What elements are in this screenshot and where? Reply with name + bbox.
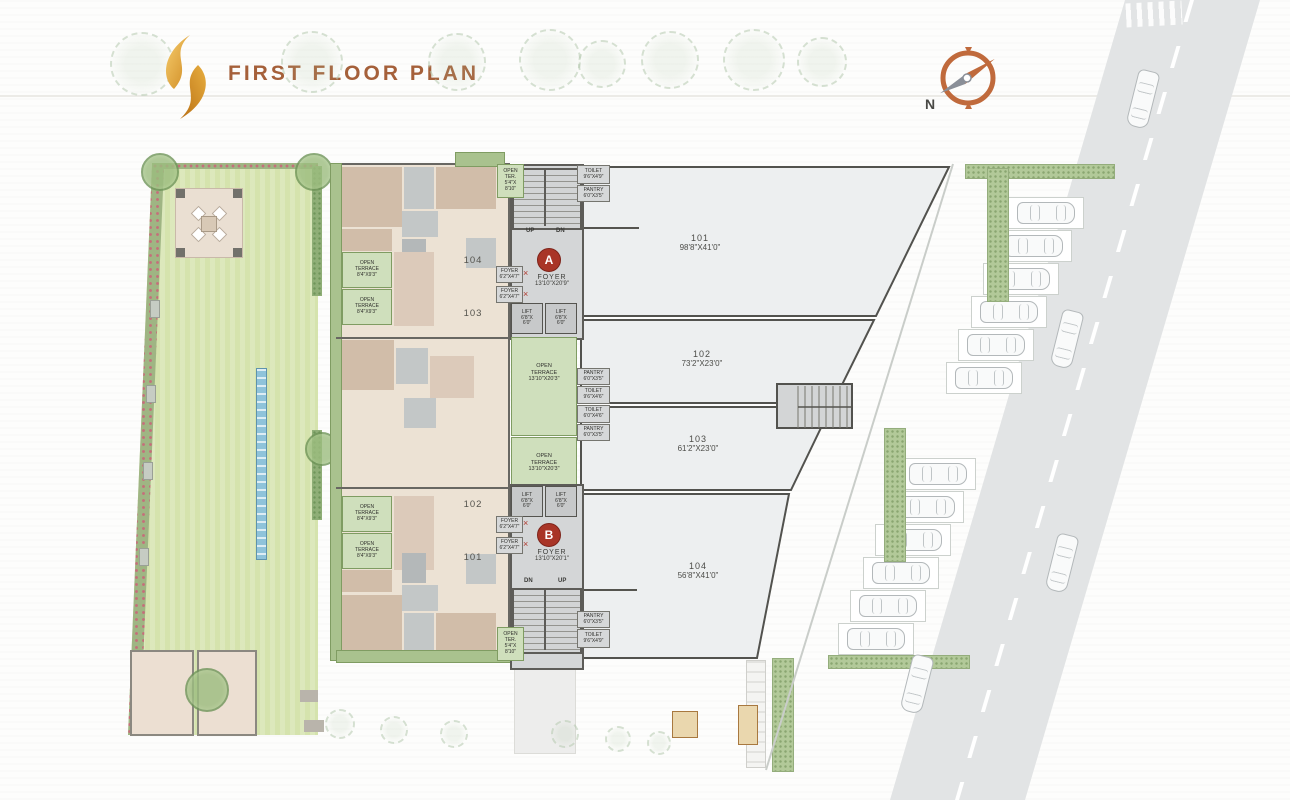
badge-b: B bbox=[537, 523, 561, 547]
toilet-box: TOILET 9'6"X4'9" bbox=[577, 165, 610, 184]
stairs-dn-label: DN bbox=[524, 578, 533, 584]
open-terrace-large-2-label: OPEN TERRACE 13'10"X20'3" bbox=[513, 450, 575, 476]
stair-rail bbox=[544, 168, 546, 226]
gazebo-post bbox=[233, 189, 242, 198]
foyer-small-box: FOYER 6'2"X4'7" bbox=[496, 516, 523, 533]
lift-box: LIFT 6'8"X 6'0" bbox=[511, 303, 543, 334]
room-block bbox=[340, 340, 394, 390]
stairs-up-label: UP bbox=[526, 228, 534, 234]
door-mark: × bbox=[523, 290, 528, 299]
toilet-box: TOILET 6'0"X4'6" bbox=[577, 405, 610, 423]
pantry-box: PANTRY 6'0"X3'5" bbox=[577, 424, 610, 441]
open-terrace-cell: OPEN TERRACE 8'4"X9'3" bbox=[342, 533, 392, 569]
lift-box: LIFT 6'8"X 6'0" bbox=[545, 486, 577, 517]
foyer-b-label: FOYER 13'10"X20'1" bbox=[517, 549, 587, 562]
room-block bbox=[404, 167, 434, 209]
open-ter-corner-b: OPEN TER. 5'4"X 8'10" bbox=[497, 627, 524, 661]
open-ter-corner-a: OPEN TER. 5'4"X 8'10" bbox=[497, 164, 524, 198]
toilet-box: TOILET 9'6"X4'6" bbox=[577, 386, 610, 404]
site-furniture bbox=[738, 705, 758, 745]
terrace-edge-strip bbox=[330, 163, 342, 661]
gazebo-post bbox=[176, 248, 185, 257]
lift-box: LIFT 6'8"X 6'0" bbox=[545, 303, 577, 334]
room-block bbox=[404, 613, 434, 655]
toilet-box: TOILET 9'6"X4'9" bbox=[577, 629, 610, 648]
room-block bbox=[436, 613, 496, 655]
unit-101-label: 101 98'8"X41'0" bbox=[640, 233, 760, 252]
terrace-edge-strip bbox=[336, 650, 512, 663]
room-block bbox=[402, 211, 438, 237]
room-block bbox=[394, 252, 434, 326]
foyer-small-box: FOYER 6'2"X4'7" bbox=[496, 286, 523, 303]
left-room-102: 102 bbox=[455, 499, 491, 510]
room-block bbox=[340, 229, 392, 251]
pantry-box: PANTRY 6'0"X3'5" bbox=[577, 368, 610, 385]
unit-102-label: 102 73'2"X23'0" bbox=[642, 349, 762, 368]
stair-rail bbox=[544, 588, 546, 650]
gazebo-post bbox=[176, 189, 185, 198]
room-block bbox=[340, 595, 402, 655]
room-block bbox=[402, 585, 438, 611]
compass-icon bbox=[932, 42, 1004, 114]
door-mark: × bbox=[523, 269, 528, 278]
stairs-dn-label: DN bbox=[556, 228, 565, 234]
open-terrace-large-1-label: OPEN TERRACE 13'10"X20'3" bbox=[513, 356, 575, 390]
door-mark: × bbox=[523, 540, 528, 549]
open-terrace-cell: OPEN TERRACE 8'4"X9'3" bbox=[342, 252, 392, 288]
door-mark: × bbox=[523, 519, 528, 528]
room-block bbox=[340, 570, 392, 592]
room-block bbox=[436, 167, 496, 209]
unit-104-label: 104 56'8"X41'0" bbox=[638, 561, 758, 580]
pantry-box: PANTRY 6'0"X3'5" bbox=[577, 611, 610, 628]
unit-101-shape bbox=[581, 167, 949, 316]
gazebo-post bbox=[233, 248, 242, 257]
brand-logo-icon bbox=[150, 33, 222, 121]
left-room-101: 101 bbox=[455, 552, 491, 563]
room-block bbox=[396, 348, 428, 384]
stairs-up-label: UP bbox=[558, 578, 566, 584]
badge-a: A bbox=[537, 248, 561, 272]
room-block bbox=[404, 398, 436, 428]
site-furniture bbox=[672, 711, 698, 738]
wall-line bbox=[336, 337, 510, 339]
room-block bbox=[402, 553, 426, 583]
central-staircase bbox=[777, 384, 852, 428]
room-block bbox=[430, 356, 474, 398]
floor-plan-canvas: 101 98'8"X41'0" 102 73'2"X23'0" 103 61'2… bbox=[0, 0, 1290, 800]
open-terrace-cell: OPEN TERRACE 8'4"X9'3" bbox=[342, 496, 392, 532]
lift-box: LIFT 6'8"X 6'0" bbox=[511, 486, 543, 517]
wall-line bbox=[336, 487, 510, 489]
room-block bbox=[340, 167, 402, 227]
pantry-box: PANTRY 6'0"X3'5" bbox=[577, 185, 610, 202]
left-room-104: 104 bbox=[455, 255, 491, 266]
left-room-103: 103 bbox=[455, 308, 491, 319]
open-terrace-cell: OPEN TERRACE 8'4"X9'3" bbox=[342, 289, 392, 325]
unit-103-label: 103 61'2"X23'0" bbox=[638, 434, 758, 453]
gazebo-table bbox=[201, 216, 217, 232]
